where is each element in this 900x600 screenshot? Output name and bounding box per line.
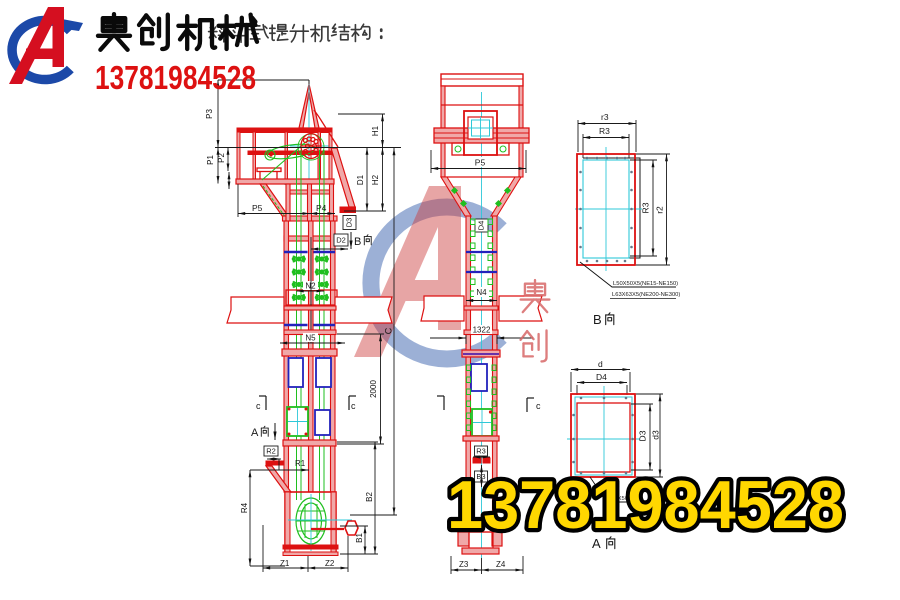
svg-text:P5: P5 xyxy=(252,203,263,213)
svg-text:R4: R4 xyxy=(240,502,249,513)
svg-text:1322: 1322 xyxy=(473,326,491,335)
svg-text:L63X63X5(NE200-NE300): L63X63X5(NE200-NE300) xyxy=(612,292,680,298)
svg-text:r2: r2 xyxy=(654,206,664,214)
svg-text:B: B xyxy=(593,312,602,327)
svg-text:d: d xyxy=(598,359,603,369)
svg-text:A: A xyxy=(251,427,259,439)
svg-text:P3: P3 xyxy=(205,109,214,119)
svg-text:H2: H2 xyxy=(371,174,380,185)
svg-text:c: c xyxy=(256,401,261,411)
svg-text:B2: B2 xyxy=(365,492,374,502)
svg-text:R3: R3 xyxy=(476,447,486,456)
svg-text:D3: D3 xyxy=(344,218,353,228)
svg-text:c: c xyxy=(536,401,541,411)
svg-text:C: C xyxy=(383,327,393,334)
svg-text:r3: r3 xyxy=(601,112,609,122)
svg-text:D3: D3 xyxy=(637,430,647,441)
svg-text:R1: R1 xyxy=(295,459,306,468)
svg-text:H1: H1 xyxy=(371,125,380,136)
svg-text:Z1: Z1 xyxy=(280,559,290,568)
svg-text:D1: D1 xyxy=(356,174,365,185)
svg-text:B: B xyxy=(354,236,361,248)
svg-text:d3: d3 xyxy=(650,430,660,440)
svg-text:P2: P2 xyxy=(217,153,226,163)
svg-text:P4: P4 xyxy=(316,203,327,213)
svg-text:Z2: Z2 xyxy=(325,559,335,568)
svg-text:D4: D4 xyxy=(596,372,607,382)
svg-text:13781984528: 13781984528 xyxy=(95,59,256,96)
svg-text:N4: N4 xyxy=(476,288,487,297)
svg-text:R2: R2 xyxy=(266,447,276,456)
svg-text:D4: D4 xyxy=(476,221,485,231)
svg-text:B1: B1 xyxy=(355,533,364,543)
svg-text:13781984528: 13781984528 xyxy=(447,467,844,543)
svg-text:R3: R3 xyxy=(640,202,650,213)
svg-text:P5: P5 xyxy=(475,158,486,168)
svg-text:R3: R3 xyxy=(599,126,610,136)
svg-text:c: c xyxy=(351,401,356,411)
svg-text:Z4: Z4 xyxy=(496,560,506,569)
svg-text:P1: P1 xyxy=(206,155,215,165)
svg-text:Z3: Z3 xyxy=(459,560,469,569)
svg-text:D2: D2 xyxy=(336,236,346,245)
svg-text:L50X50X5(NE15-NE150): L50X50X5(NE15-NE150) xyxy=(613,281,678,287)
svg-text:2000: 2000 xyxy=(369,380,378,398)
svg-text:N5: N5 xyxy=(305,334,316,343)
